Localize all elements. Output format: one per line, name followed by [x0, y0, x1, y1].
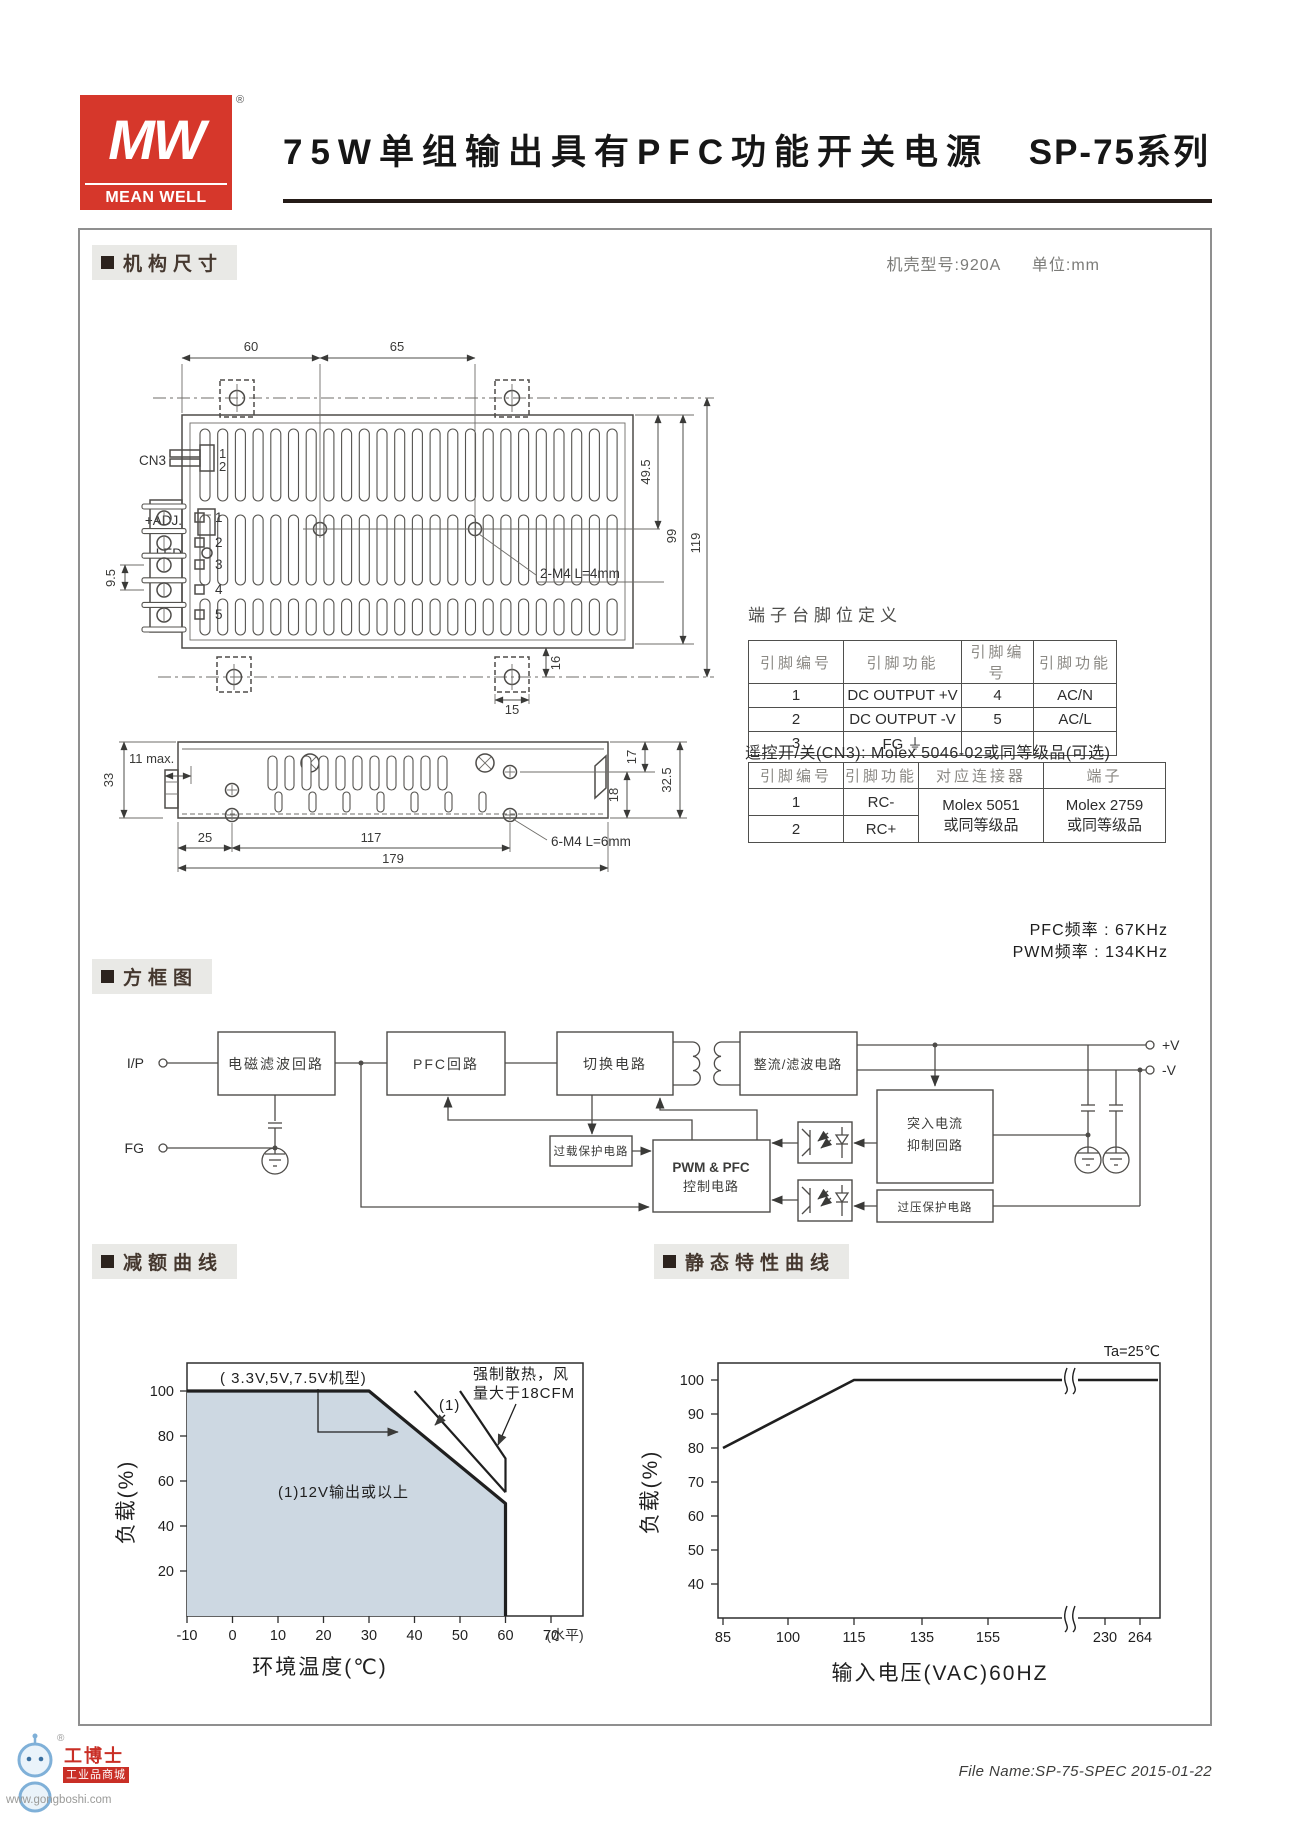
cn3-table-cell: RC-: [844, 789, 919, 816]
pwm-pfc-control-box: [653, 1140, 770, 1212]
svg-text:40: 40: [406, 1628, 422, 1644]
cn3-table-cell: 2: [749, 816, 844, 843]
pin-table-cell: DC OUTPUT -V: [844, 708, 962, 732]
svg-text:20: 20: [315, 1628, 331, 1644]
cn3-connector-cell: Molex 5051 或同等级品: [919, 789, 1044, 843]
mech-top-view-drawing: 2-M4 L=4mm 60 65 49.5 99 119 16 15 CN3 1…: [98, 288, 718, 715]
svg-text:40: 40: [688, 1577, 704, 1593]
svg-text:115: 115: [842, 1630, 865, 1646]
vout-pos-label: +V: [1162, 1037, 1180, 1053]
pin-1: 1: [215, 510, 223, 525]
label-cn3: CN3: [139, 453, 166, 468]
svg-text:155: 155: [976, 1630, 1000, 1646]
pin-table-header: 引脚功能: [1034, 641, 1117, 684]
watermark-badge: 工业品商城: [63, 1767, 129, 1783]
pin-table-cell: 4: [962, 684, 1034, 708]
logo-mw-glyph: MW: [80, 97, 232, 181]
dim-6m4: 6-M4 L=6mm: [551, 834, 631, 849]
input-label: I/P: [127, 1055, 144, 1071]
dim-60: 60: [244, 339, 258, 354]
svg-text:量大于18CFM: 量大于18CFM: [473, 1385, 575, 1402]
section-label: 静态特性曲线: [685, 1248, 835, 1275]
connector-line1: Molex 5051: [921, 797, 1041, 814]
ovp-label: 过压保护电路: [898, 1200, 973, 1214]
dim-15: 15: [505, 702, 519, 717]
dim-25: 25: [198, 830, 212, 845]
svg-text:20: 20: [158, 1564, 174, 1580]
svg-text:100: 100: [150, 1384, 174, 1400]
cn3-table-header: 端子: [1044, 763, 1166, 789]
pfc-frequency: PFC频率 : 67KHz: [850, 920, 1168, 942]
svg-text:40: 40: [158, 1519, 174, 1535]
dim-117: 117: [361, 830, 382, 845]
logo-brand-text: MEAN WELL: [80, 189, 232, 207]
static-curve-chart: 40506070809010085100115135155230264Ta=25…: [600, 1290, 1200, 1700]
svg-text:85: 85: [715, 1630, 731, 1646]
svg-text:(1)12V输出或以上: (1)12V输出或以上: [278, 1484, 409, 1501]
dim-49-5: 49.5: [638, 459, 653, 484]
pin-table-header: 引脚功能: [844, 641, 962, 684]
inrush-limit-box: [877, 1090, 993, 1183]
cn3-pin-2: 2: [219, 459, 226, 474]
svg-text:50: 50: [452, 1628, 468, 1644]
pfc-label: PFC回路: [413, 1056, 479, 1072]
vent-slot-row: [200, 429, 617, 501]
cn3-note: 遥控开/关(CN3): Molex 5046-02或同等级品(可选): [745, 739, 1111, 763]
svg-text:(1): (1): [439, 1397, 460, 1414]
dim-18: 18: [606, 788, 621, 802]
svg-text:60: 60: [688, 1509, 704, 1525]
cn3-table-cell: 1: [749, 789, 844, 816]
logo-registered-mark: ®: [236, 94, 244, 106]
emi-filter-label: 电磁滤波回路: [228, 1056, 324, 1072]
svg-text:60: 60: [497, 1628, 513, 1644]
svg-text:50: 50: [688, 1543, 704, 1559]
pin-table-header: 引脚编号: [962, 641, 1034, 684]
meanwell-logo: MW MEAN WELL: [80, 95, 232, 210]
case-model: 机壳型号:920A: [887, 257, 1001, 274]
section-square-icon: [101, 1255, 114, 1268]
pwm-label-1: PWM & PFC: [672, 1160, 749, 1175]
section-mechanical: 机构尺寸: [92, 245, 237, 280]
cn3-table: 引脚编号 引脚功能 对应连接器 端子 1 RC- Molex 5051 或同等级…: [748, 762, 1166, 843]
cn3-terminal-cell: Molex 2759 或同等级品: [1044, 789, 1166, 843]
pin-4: 4: [215, 582, 223, 597]
rectifier-label: 整流/滤波电路: [754, 1057, 843, 1072]
section-square-icon: [663, 1255, 676, 1268]
pin-table-cell: 2: [749, 708, 844, 732]
block-diagram: I/P FG +V -V 电磁滤波回路 PFC回路 切换电路 整流/滤波电路 过…: [100, 985, 1200, 1235]
svg-text:负载(%): 负载(%): [639, 1450, 662, 1535]
inrush-label-1: 突入电流: [907, 1116, 963, 1131]
pin-table-cell: 5: [962, 708, 1034, 732]
svg-text:100: 100: [776, 1630, 800, 1646]
pwm-frequency: PWM频率 : 134KHz: [850, 942, 1168, 964]
dim-33: 33: [101, 773, 116, 787]
logo-divider: [85, 183, 227, 185]
svg-text:80: 80: [158, 1429, 174, 1445]
watermark-name: 工博士: [64, 1742, 124, 1768]
file-name: File Name:SP-75-SPEC 2015-01-22: [700, 1763, 1212, 1780]
fg-label: FG: [125, 1140, 144, 1156]
derating-chart: 20406080100-10010203040506070(水平)( 3.3V,…: [95, 1290, 610, 1700]
svg-text:Ta=25℃: Ta=25℃: [1104, 1344, 1160, 1360]
pin-table-cell: AC/N: [1034, 684, 1117, 708]
section-derating: 减额曲线: [92, 1244, 237, 1279]
svg-text:70: 70: [688, 1475, 704, 1491]
dim-17: 17: [624, 750, 639, 764]
pin-table-title: 端子台脚位定义: [748, 601, 902, 626]
connector-line2: 或同等级品: [921, 814, 1041, 835]
dim-119: 119: [688, 533, 703, 554]
page-title: 75W单组输出具有PFC功能开关电源: [283, 124, 989, 175]
overload-label: 过载保护电路: [554, 1144, 629, 1158]
dim-9-5: 9.5: [103, 569, 118, 587]
cn3-table-header: 引脚功能: [844, 763, 919, 789]
cn3-table-header: 引脚编号: [749, 763, 844, 789]
terminal-line1: Molex 2759: [1046, 797, 1163, 814]
title-underline: [283, 199, 1212, 203]
svg-text:( 3.3V,5V,7.5V机型): ( 3.3V,5V,7.5V机型): [220, 1370, 367, 1387]
pwm-label-2: 控制电路: [683, 1179, 739, 1194]
svg-text:输入电压(VAC)60HZ: 输入电压(VAC)60HZ: [832, 1662, 1049, 1685]
svg-text:-10: -10: [177, 1628, 198, 1644]
pin-table-header: 引脚编号: [749, 641, 844, 684]
dim-32-5: 32.5: [659, 767, 674, 792]
svg-text:30: 30: [361, 1628, 377, 1644]
case-info: 机壳型号:920A 单位:mm: [700, 251, 1100, 275]
svg-text:(水平): (水平): [546, 1627, 583, 1643]
case-unit: 单位:mm: [1032, 257, 1100, 274]
dim-99: 99: [664, 529, 679, 543]
pin-table-cell: 1: [749, 684, 844, 708]
svg-text:60: 60: [158, 1474, 174, 1490]
pin-2: 2: [215, 535, 223, 550]
optocoupler-2: [798, 1180, 852, 1221]
switching-label: 切换电路: [583, 1056, 647, 1072]
mech-side-view-drawing: 11 max. 33 6-M4 L=6mm 25 117 179: [95, 730, 715, 890]
svg-text:0: 0: [228, 1628, 236, 1644]
side-vent-slots-small: [275, 792, 486, 812]
datasheet-page: MW MEAN WELL ® 75W单组输出具有PFC功能开关电源 SP-75系…: [0, 0, 1290, 1825]
pin-3: 3: [215, 557, 223, 572]
series-name: SP-75系列: [1029, 124, 1210, 175]
svg-text:10: 10: [270, 1628, 286, 1644]
section-static-curve: 静态特性曲线: [654, 1244, 849, 1279]
svg-text:230: 230: [1093, 1630, 1117, 1646]
pin-table-cell: AC/L: [1034, 708, 1117, 732]
pin-5: 5: [215, 607, 223, 622]
svg-text:强制散热，风: 强制散热，风: [473, 1366, 569, 1383]
dim-2m4-top: 2-M4 L=4mm: [540, 566, 620, 581]
terminal-line2: 或同等级品: [1046, 814, 1163, 835]
section-square-icon: [101, 256, 114, 269]
section-square-icon: [101, 970, 114, 983]
pin-table-cell: DC OUTPUT +V: [844, 684, 962, 708]
svg-text:90: 90: [688, 1407, 704, 1423]
dim-16: 16: [548, 656, 563, 670]
side-vent-slots: [268, 756, 447, 790]
dim-65: 65: [390, 339, 404, 354]
svg-text:环境温度(℃): 环境温度(℃): [252, 1656, 388, 1679]
svg-text:135: 135: [910, 1630, 934, 1646]
svg-text:80: 80: [688, 1441, 704, 1457]
watermark-url: www.gongboshi.com: [6, 1794, 111, 1806]
section-label: 减额曲线: [123, 1248, 223, 1275]
vout-neg-label: -V: [1162, 1062, 1177, 1078]
svg-text:负载(%): 负载(%): [115, 1460, 138, 1545]
svg-text:264: 264: [1128, 1630, 1152, 1646]
frequency-info: PFC频率 : 67KHz PWM频率 : 134KHz: [850, 920, 1168, 964]
cn3-table-header: 对应连接器: [919, 763, 1044, 789]
inrush-label-2: 抑制回路: [907, 1138, 963, 1153]
vent-slot-row: [200, 599, 617, 635]
gongboshi-robot-icon: [6, 1732, 64, 1820]
optocoupler-1: [798, 1122, 852, 1163]
section-label: 机构尺寸: [123, 249, 223, 276]
dim-11max: 11 max.: [129, 751, 174, 766]
cn3-table-cell: RC+: [844, 816, 919, 843]
dim-179: 179: [382, 851, 404, 866]
svg-text:100: 100: [680, 1373, 704, 1389]
